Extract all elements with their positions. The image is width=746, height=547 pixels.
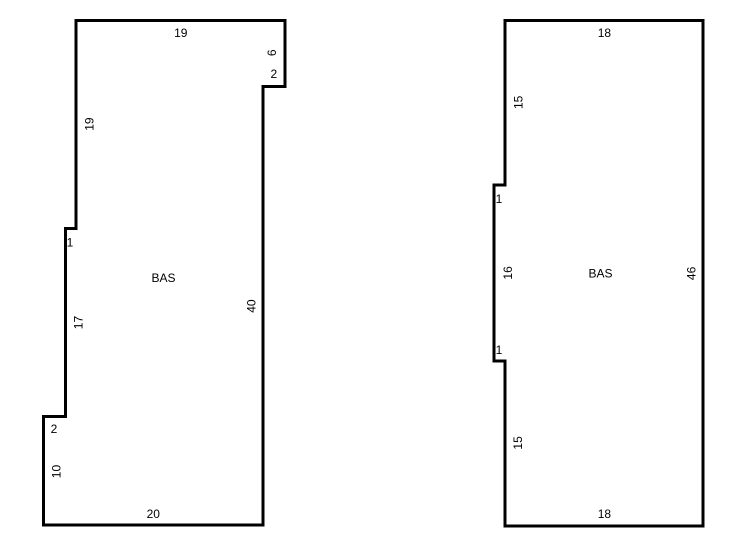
svg-text:18: 18 [598, 26, 612, 40]
svg-text:BAS: BAS [151, 271, 175, 285]
svg-text:16: 16 [501, 266, 515, 280]
svg-text:6: 6 [265, 49, 279, 56]
svg-text:2: 2 [51, 422, 58, 436]
svg-text:15: 15 [511, 436, 525, 450]
svg-text:18: 18 [598, 507, 612, 521]
svg-text:15: 15 [511, 95, 525, 109]
svg-text:10: 10 [50, 465, 64, 479]
svg-text:1: 1 [496, 343, 503, 357]
svg-text:46: 46 [685, 266, 699, 280]
svg-text:19: 19 [174, 26, 188, 40]
svg-text:2: 2 [271, 67, 278, 81]
svg-text:1: 1 [67, 236, 74, 250]
svg-text:1: 1 [496, 192, 503, 206]
svg-text:40: 40 [245, 299, 259, 313]
svg-text:17: 17 [72, 316, 86, 330]
svg-text:BAS: BAS [588, 267, 612, 281]
svg-text:20: 20 [147, 507, 161, 521]
svg-text:19: 19 [83, 117, 97, 131]
